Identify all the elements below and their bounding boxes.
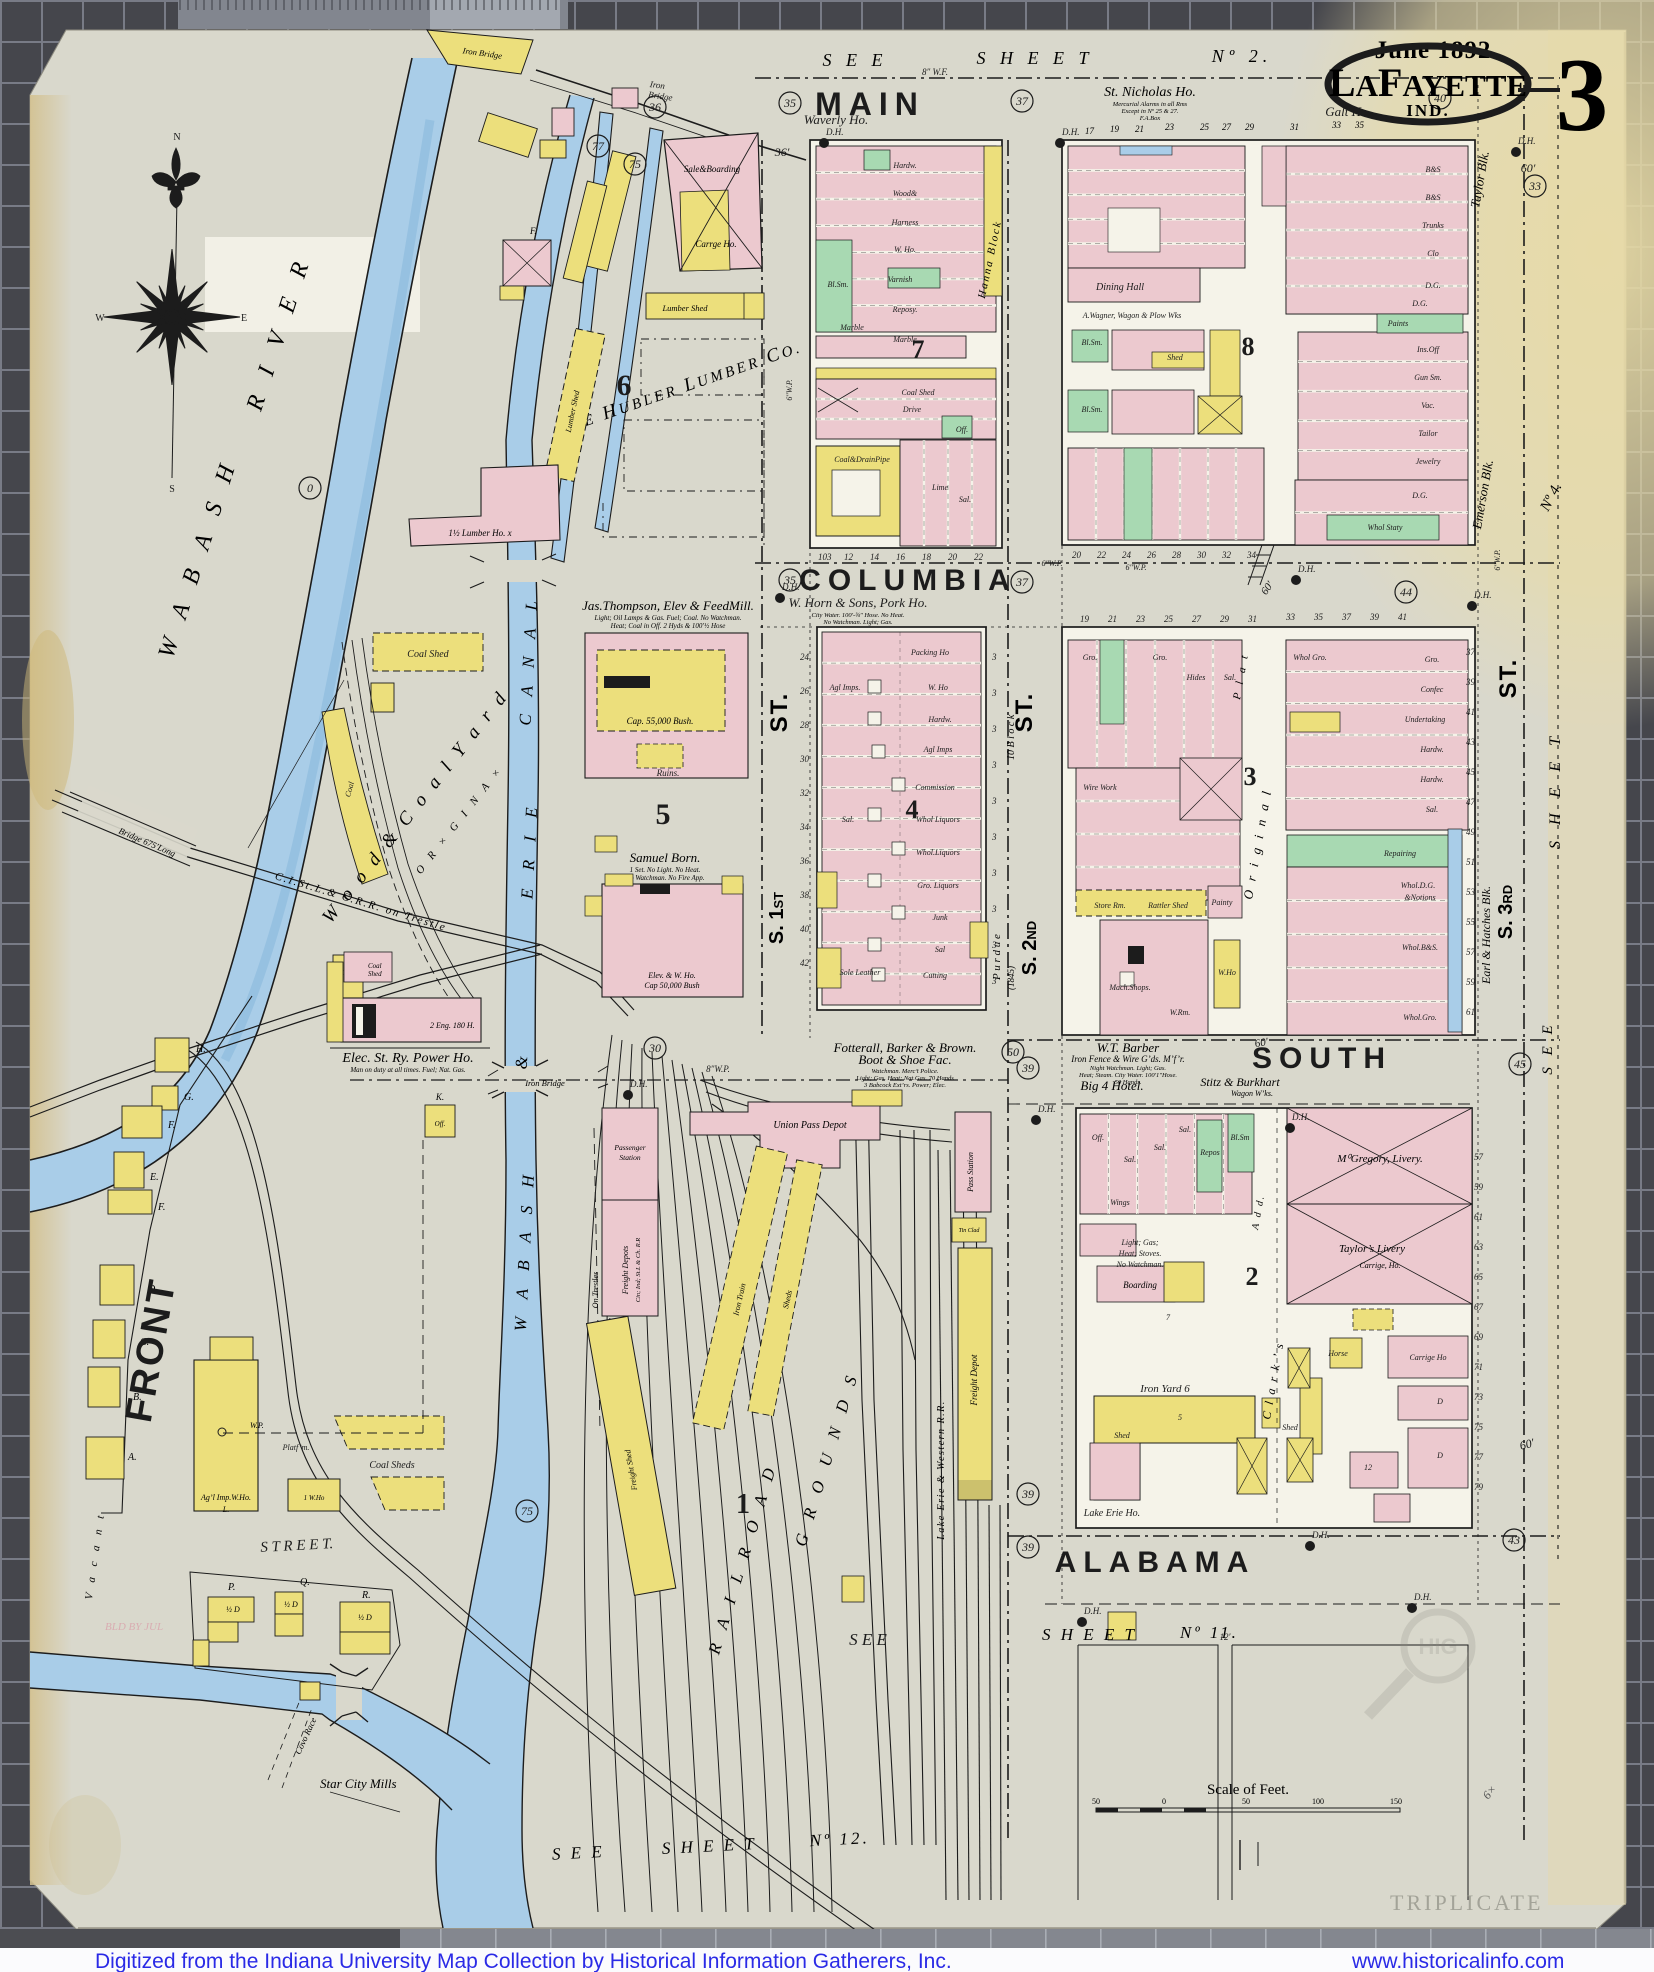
svg-text:Whol Gro.: Whol Gro. [1293,653,1326,662]
svg-text:Shed: Shed [1114,1431,1131,1440]
svg-text:Sal.: Sal. [1179,1125,1191,1134]
svg-text:D.H.: D.H. [781,582,800,592]
svg-text:Tailor: Tailor [1418,429,1438,438]
svg-text:32: 32 [1221,550,1232,560]
svg-text:City Water. 100′-¾″ Hose. No H: City Water. 100′-¾″ Hose. No Heat. [812,612,905,619]
svg-text:12: 12 [844,552,854,562]
svg-text:14: 14 [870,552,880,562]
svg-text:57: 57 [1466,947,1476,957]
svg-text:77: 77 [1474,1452,1484,1462]
svg-text:5: 5 [656,798,671,831]
svg-text:35: 35 [1313,612,1324,622]
svg-text:20: 20 [1072,550,1082,560]
svg-text:Clo: Clo [1427,249,1439,258]
svg-text:39: 39 [1021,1540,1034,1554]
svg-text:Paints: Paints [1387,319,1408,328]
svg-text:TRIPLICATE: TRIPLICATE [1390,1890,1543,1915]
svg-text:Waverly Ho.: Waverly Ho. [804,112,869,127]
svg-text:Whol.B&S.: Whol.B&S. [1402,943,1438,952]
svg-text:67: 67 [1474,1302,1484,1312]
svg-text:N: N [173,132,180,143]
svg-text:150: 150 [1390,1797,1402,1806]
svg-text:43: 43 [1508,1533,1520,1547]
svg-text:Agl Imps: Agl Imps [923,745,953,754]
svg-text:Confec: Confec [1421,685,1444,694]
svg-text:Coal: Coal [368,962,382,970]
svg-text:28: 28 [1172,550,1182,560]
svg-text:St. Nicholas Ho.: St. Nicholas Ho. [1104,85,1196,100]
svg-text:Coal Sheds: Coal Sheds [369,1460,414,1471]
svg-text:42: 42 [800,958,810,968]
svg-text:59: 59 [1474,1182,1484,1192]
svg-text:59: 59 [1466,977,1476,987]
svg-text:41: 41 [1398,612,1407,622]
svg-text:R.: R. [361,1590,371,1601]
svg-text:Bl.Sm.: Bl.Sm. [1082,338,1103,347]
svg-text:37: 37 [1015,94,1029,108]
svg-text:A.: A. [127,1452,137,1463]
svg-text:Store Rm.: Store Rm. [1094,901,1125,910]
svg-text:Bl.Sm.: Bl.Sm. [828,280,849,289]
svg-text:22: 22 [1097,550,1107,560]
svg-text:D.H.: D.H. [1413,1592,1432,1602]
svg-text:Whol Staty: Whol Staty [1368,523,1403,532]
svg-text:D.H.: D.H. [1037,1104,1056,1114]
svg-text:Carrge Ho.: Carrge Ho. [695,239,736,249]
svg-text:Wings: Wings [1110,1198,1130,1207]
svg-text:31: 31 [1289,122,1299,132]
svg-text:D.H.: D.H. [825,127,844,137]
svg-text:26: 26 [1147,550,1157,560]
svg-text:D: D [1436,1451,1443,1460]
svg-text:Samuel Born.: Samuel Born. [630,850,701,865]
svg-text:D.H.: D.H. [1083,1606,1102,1616]
svg-text:75: 75 [521,1504,533,1518]
svg-text:Heat; Coal in Off. 2 Hyds & 10: Heat; Coal in Off. 2 Hyds & 100′½ Hose [610,622,726,630]
svg-text:W.Rm.: W.Rm. [1170,1008,1191,1017]
svg-text:Nº 11.: Nº 11. [1179,1623,1239,1642]
svg-text:Scale of Feet.: Scale of Feet. [1207,1782,1289,1798]
svg-text:Gro. Liquors: Gro. Liquors [917,881,959,890]
svg-text:½ D: ½ D [226,1605,240,1614]
svg-text:Coal Shed: Coal Shed [407,649,449,660]
svg-text:Hardw.: Hardw. [892,161,916,170]
svg-text:3: 3 [991,760,997,770]
svg-text:Off.: Off. [956,425,968,434]
svg-text:19: 19 [1110,124,1120,134]
svg-text:G.: G. [184,1092,194,1103]
svg-text:Sal.: Sal. [1124,1155,1136,1164]
svg-text:21: 21 [1108,614,1117,624]
svg-text:F.A.Box: F.A.Box [1139,115,1161,122]
svg-text:D.H.: D.H. [1473,590,1492,600]
svg-text:63: 63 [1474,1242,1484,1252]
svg-text:Nº 12.: Nº 12. [808,1828,870,1850]
svg-text:Light; Oil Lamps & Gas. Fuel;: Light; Oil Lamps & Gas. Fuel; Coal. No W… [594,614,742,622]
svg-text:Lake Erie & Western R.R.: Lake Erie & Western R.R. [936,1400,947,1541]
svg-text:37: 37 [1015,575,1029,589]
svg-text:D.H.: D.H. [1517,136,1536,146]
svg-text:P.: P. [227,1582,235,1593]
svg-text:12: 12 [1364,1463,1372,1472]
svg-text:BLD BY JUL: BLD BY JUL [105,1621,163,1633]
svg-text:40: 40 [800,924,810,934]
svg-text:6″W.P.: 6″W.P. [1125,563,1146,572]
svg-text:Coal&DrainPipe: Coal&DrainPipe [834,455,890,464]
svg-text:B&S: B&S [1425,193,1440,202]
svg-text:F.: F. [529,226,537,236]
svg-text:50: 50 [1007,1045,1019,1059]
svg-text:Night Watchman. Light; Gas.: Night Watchman. Light; Gas. [1089,1065,1167,1072]
svg-text:60′: 60′ [1521,161,1536,175]
svg-text:26: 26 [800,686,810,696]
svg-text:W.P.: W.P. [250,1421,264,1430]
svg-text:27: 27 [1222,122,1232,132]
svg-text:Sale&Boarding: Sale&Boarding [684,164,741,174]
svg-text:Pass Station: Pass Station [966,1152,975,1193]
svg-text:½ D: ½ D [284,1600,298,1609]
svg-text:Station: Station [619,1153,641,1162]
svg-text:L.: L. [222,1505,229,1514]
svg-text:Tin Clad: Tin Clad [959,1228,981,1234]
svg-text:Wood&: Wood& [893,189,918,198]
svg-text:71: 71 [1474,1362,1483,1372]
svg-text:20: 20 [948,552,958,562]
svg-text:Cap. 55,000 Bush.: Cap. 55,000 Bush. [627,716,694,726]
svg-text:On Trestles: On Trestles [591,1272,600,1308]
svg-text:D.H.: D.H. [1291,1112,1310,1122]
svg-text:Repairing: Repairing [1383,849,1416,858]
svg-text:Junk: Junk [932,913,948,922]
svg-text:Sal: Sal [935,945,946,954]
svg-text:77: 77 [592,139,605,153]
svg-text:Dining Hall: Dining Hall [1095,282,1144,293]
svg-text:55: 55 [1466,917,1476,927]
svg-text:21: 21 [1135,124,1144,134]
svg-text:ST.: ST. [1495,658,1522,699]
svg-text:D.G.: D.G. [1424,281,1441,290]
svg-text:1½ Lumber Ho. x: 1½ Lumber Ho. x [448,528,511,538]
svg-text:IND.: IND. [1406,101,1449,120]
svg-text:36: 36 [648,100,661,114]
svg-text:Drive: Drive [902,405,922,414]
svg-text:33: 33 [1528,179,1541,193]
svg-text:W: W [95,313,105,324]
svg-text:49: 49 [1466,827,1476,837]
svg-text:35: 35 [1354,120,1365,130]
svg-text:W. Ho.: W. Ho. [894,245,916,254]
svg-text:18: 18 [922,552,932,562]
svg-text:COLUMBIA: COLUMBIA [799,564,1017,597]
svg-text:No Watchman. No Fire App.: No Watchman. No Fire App. [624,874,704,882]
svg-text:K.: K. [435,1092,444,1102]
svg-text:Shed: Shed [1167,353,1184,362]
svg-text:D.H.: D.H. [1311,1530,1330,1540]
svg-text:Undertaking: Undertaking [1405,715,1445,724]
svg-text:51: 51 [1466,857,1475,867]
svg-text:Sole Leather: Sole Leather [840,968,882,977]
svg-text:44: 44 [1400,585,1412,599]
svg-text:37: 37 [1465,647,1476,657]
svg-text:&Notions: &Notions [1404,893,1435,902]
svg-text:Carrige, Ho.: Carrige, Ho. [1359,1261,1400,1270]
svg-text:W.Ho: W.Ho [1218,968,1236,977]
svg-text:33: 33 [1285,612,1296,622]
svg-text:M⁰Gregory, Livery.: M⁰Gregory, Livery. [1336,1153,1423,1165]
svg-text:Agl Imps.: Agl Imps. [829,683,861,692]
svg-text:Cap 50,000 Bush: Cap 50,000 Bush [644,981,699,990]
svg-text:S E E: S E E [1540,1021,1556,1074]
svg-text:5: 5 [1178,1413,1182,1422]
svg-text:Hides: Hides [1186,673,1206,682]
svg-text:1 Set. No Light. No Heat.: 1 Set. No Light. No Heat. [630,866,701,874]
svg-text:F.: F. [167,1120,175,1131]
svg-text:Lumber Shed: Lumber Shed [661,303,708,313]
svg-text:25: 25 [1164,614,1174,624]
svg-text:Varnish: Varnish [888,275,912,284]
svg-text:Harness: Harness [891,218,919,227]
svg-text:Wire Work: Wire Work [1083,783,1117,792]
svg-text:60′: 60′ [1254,1036,1270,1050]
svg-text:3 Babcock Ext’rs. Power; Elec.: 3 Babcock Ext’rs. Power; Elec. [863,1082,946,1089]
svg-text:Whol.Gro.: Whol.Gro. [1403,1013,1436,1022]
svg-text:8: 8 [1242,332,1255,361]
svg-text:75: 75 [629,157,641,171]
svg-text:Big 4 Hotel.: Big 4 Hotel. [1080,1078,1143,1093]
svg-text:24: 24 [800,652,810,662]
svg-text:Elec. St. Ry. Power Ho.: Elec. St. Ry. Power Ho. [341,1051,473,1066]
svg-text:Ag’l Imp.W.Ho.: Ag’l Imp.W.Ho. [200,1493,251,1502]
svg-text:Wagon W’ks.: Wagon W’ks. [1231,1089,1273,1098]
svg-text:E: E [241,313,247,324]
svg-text:Light; Gas. Heat; Nat.Gas. 70: Light; Gas. Heat; Nat.Gas. 70 Hands [855,1075,954,1082]
svg-text:Watchman. Merc’t Police.: Watchman. Merc’t Police. [871,1068,938,1075]
svg-text:36′: 36′ [774,145,790,159]
svg-text:Stitz & Burkhart: Stitz & Burkhart [1200,1075,1280,1089]
svg-text:3: 3 [991,832,997,842]
svg-text:61: 61 [1466,1007,1475,1017]
svg-text:30: 30 [1196,550,1207,560]
svg-text:D.G.: D.G. [1411,299,1428,308]
svg-text:F.: F. [157,1202,165,1213]
svg-text:Jewelry: Jewelry [1416,457,1441,466]
svg-text:S E E: S E E [823,50,888,70]
svg-text:Gun Sm.: Gun Sm. [1414,373,1442,382]
svg-text:28: 28 [800,720,810,730]
svg-text:Marble: Marble [839,323,864,332]
svg-text:Union Pass Depot: Union Pass Depot [773,1120,847,1131]
svg-text:Heat; Stoves.: Heat; Stoves. [1118,1249,1162,1258]
svg-text:Packing Ho: Packing Ho [910,648,949,657]
svg-text:S H E E T: S H E E T [1547,731,1564,849]
svg-text:E.: E. [149,1172,159,1183]
svg-text:25: 25 [1200,122,1210,132]
svg-text:2 Eng. 180 H.: 2 Eng. 180 H. [430,1021,475,1030]
svg-text:50: 50 [1242,1797,1250,1806]
svg-text:Elev. & W. Ho.: Elev. & W. Ho. [647,971,696,980]
svg-text:Iron Fence & Wire G’ds. M’f’r.: Iron Fence & Wire G’ds. M’f’r. [1070,1054,1184,1064]
svg-text:16: 16 [896,552,906,562]
svg-text:3: 3 [1556,36,1609,153]
svg-text:32: 32 [799,788,810,798]
svg-text:Man on duty at all times. Fuel: Man on duty at all times. Fuel; Nat. Gas… [349,1066,466,1074]
svg-text:Sal.: Sal. [842,815,854,824]
svg-text:Freight Depot: Freight Depot [969,1354,979,1406]
svg-text:39: 39 [1465,677,1476,687]
svg-text:Gro.: Gro. [1153,653,1168,662]
svg-text:Hardw.: Hardw. [927,715,951,724]
svg-text:Sal.: Sal. [1154,1143,1166,1152]
svg-text:41: 41 [1466,707,1475,717]
svg-text:8″W.P.: 8″W.P. [706,1064,730,1074]
svg-text:Off.: Off. [435,1120,446,1128]
svg-text:D: D [1436,1397,1443,1406]
svg-text:Gro.: Gro. [1425,655,1440,664]
svg-text:73: 73 [1474,1392,1484,1402]
svg-text:Cin; Ind; St.L & Ch. R.R: Cin; Ind; St.L & Ch. R.R [635,1238,642,1303]
svg-text:Jas.Thompson, Elev & FeedMill.: Jas.Thompson, Elev & FeedMill. [582,598,754,613]
svg-text:Light; Gas;: Light; Gas; [1120,1238,1158,1247]
svg-text:3: 3 [991,904,997,914]
svg-text:B&S: B&S [1425,165,1440,174]
svg-text:Nº 2.: Nº 2. [1211,46,1273,66]
svg-text:61: 61 [1474,1212,1483,1222]
svg-text:ALABAMA: ALABAMA [1055,1546,1256,1579]
svg-text:Bl.Sm.: Bl.Sm. [1082,405,1103,414]
svg-text:6″W.P.: 6″W.P. [1493,549,1502,570]
svg-text:3: 3 [991,652,997,662]
svg-text:Mach.Shops.: Mach.Shops. [1108,983,1150,992]
svg-text:103: 103 [818,552,832,562]
svg-text:D.H.: D.H. [1297,564,1316,574]
svg-text:A.Wagner, Wagon & Plow Wks: A.Wagner, Wagon & Plow Wks [1082,311,1182,320]
svg-text:S E E: S E E [849,1630,887,1649]
svg-text:Shed: Shed [1282,1423,1299,1432]
svg-text:Except in Nº 25 & 27.: Except in Nº 25 & 27. [1121,108,1179,115]
svg-text:Repos: Repos [1199,1148,1220,1157]
svg-text:39: 39 [1021,1487,1034,1501]
svg-text:Star City Mills: Star City Mills [320,1776,397,1791]
svg-text:Rattler Shed: Rattler Shed [1147,901,1189,910]
svg-text:SOUTH: SOUTH [1252,1042,1392,1075]
svg-text:W. Ho: W. Ho [928,683,948,692]
svg-text:30: 30 [648,1041,661,1055]
svg-text:34: 34 [799,822,810,832]
svg-text:39: 39 [1369,612,1380,622]
svg-text:3: 3 [991,796,997,806]
svg-text:Platf’m.: Platf’m. [282,1443,310,1452]
svg-text:&: & [512,1055,532,1070]
svg-text:0: 0 [307,481,313,495]
svg-text:47: 47 [1466,797,1476,807]
svg-text:Lake Erie Ho.: Lake Erie Ho. [1083,1508,1140,1519]
svg-text:100: 100 [1312,1797,1324,1806]
svg-text:(1845): (1845) [1006,966,1016,990]
svg-text:36: 36 [799,856,810,866]
svg-text:57: 57 [1474,1152,1484,1162]
svg-text:D.G.: D.G. [1411,491,1428,500]
svg-text:Mercurial Alarms in all Rms: Mercurial Alarms in all Rms [1112,101,1188,108]
svg-text:D.H.: D.H. [1061,127,1080,137]
svg-text:No Watchman.: No Watchman. [1116,1260,1164,1269]
svg-text:S H E E T: S H E E T [1042,1625,1137,1644]
svg-text:Sal.: Sal. [1426,805,1438,814]
svg-text:29: 29 [1220,614,1230,624]
svg-text:Boarding: Boarding [1123,1280,1157,1290]
svg-text:Passenger: Passenger [613,1143,645,1152]
svg-text:6: 6 [617,369,632,402]
svg-text:Whol.Liquors: Whol.Liquors [916,848,960,857]
svg-text:Trunks: Trunks [1422,221,1444,230]
svg-text:Painty: Painty [1211,898,1233,907]
svg-text:6″W.P.: 6″W.P. [785,379,794,400]
svg-text:W.T. Barber: W.T. Barber [1097,1040,1160,1055]
svg-text:6″W.P.: 6″W.P. [1041,559,1062,568]
svg-text:No Watchman. Light; Gas.: No Watchman. Light; Gas. [822,619,893,626]
svg-text:43: 43 [1466,737,1476,747]
svg-text:Iron Yard 6: Iron Yard 6 [1139,1383,1190,1395]
svg-text:HIG: HIG [1418,1634,1457,1659]
svg-text:3: 3 [991,940,997,950]
svg-text:H.: H. [195,1044,206,1055]
svg-text:3: 3 [991,976,997,986]
svg-text:1 W.Ho: 1 W.Ho [304,1494,325,1502]
svg-text:Q.: Q. [300,1577,310,1588]
svg-text:34: 34 [1246,550,1257,560]
svg-text:Iron Bridge: Iron Bridge [524,1078,565,1088]
svg-text:S: S [169,484,175,495]
svg-text:Hardw.: Hardw. [1419,745,1443,754]
svg-text:Commission: Commission [915,783,955,792]
svg-text:19: 19 [1080,614,1090,624]
svg-text:69: 69 [1474,1332,1484,1342]
svg-text:45: 45 [1466,767,1476,777]
svg-text:24: 24 [1122,550,1132,560]
svg-text:79: 79 [1474,1482,1484,1492]
svg-text:Coal Shed: Coal Shed [901,388,935,397]
svg-text:33: 33 [1331,120,1342,130]
svg-text:Taylor’s Livery: Taylor’s Livery [1339,1243,1405,1255]
svg-text:Gro.: Gro. [1083,653,1098,662]
svg-text:53: 53 [1466,887,1476,897]
svg-text:Earl & Hatches Blk.: Earl & Hatches Blk. [1479,886,1493,985]
svg-text:Hardw.: Hardw. [1419,775,1443,784]
svg-text:1: 1 [736,1489,750,1520]
svg-text:½ D: ½ D [358,1613,372,1622]
svg-text:Carrige Ho: Carrige Ho [1409,1353,1446,1362]
svg-text:S H E E T: S H E E T [977,48,1094,68]
svg-text:Digitized from the Indiana Uni: Digitized from the Indiana University Ma… [95,1950,952,1972]
svg-text:Lime: Lime [931,483,948,492]
svg-text:Sal.: Sal. [959,495,971,504]
svg-text:50: 50 [1092,1797,1100,1806]
svg-text:23: 23 [1165,122,1175,132]
svg-text:Whol.D.G.: Whol.D.G. [1401,881,1435,890]
svg-text:Cutting: Cutting [923,971,947,980]
svg-text:Vac.: Vac. [1421,401,1435,410]
svg-text:45: 45 [1514,1057,1526,1071]
svg-text:23: 23 [1136,614,1146,624]
svg-text:S E E: S E E [552,1842,606,1864]
svg-text:ST.: ST. [1011,692,1038,733]
svg-text:2: 2 [1246,1262,1259,1291]
svg-text:D.H.: D.H. [629,1079,648,1089]
svg-text:31: 31 [1247,614,1257,624]
svg-text:W. Horn & Sons, Pork Ho.: W. Horn & Sons, Pork Ho. [789,595,928,610]
svg-text:Marble: Marble [892,335,917,344]
svg-text:3: 3 [991,868,997,878]
svg-text:Off.: Off. [1092,1133,1104,1142]
